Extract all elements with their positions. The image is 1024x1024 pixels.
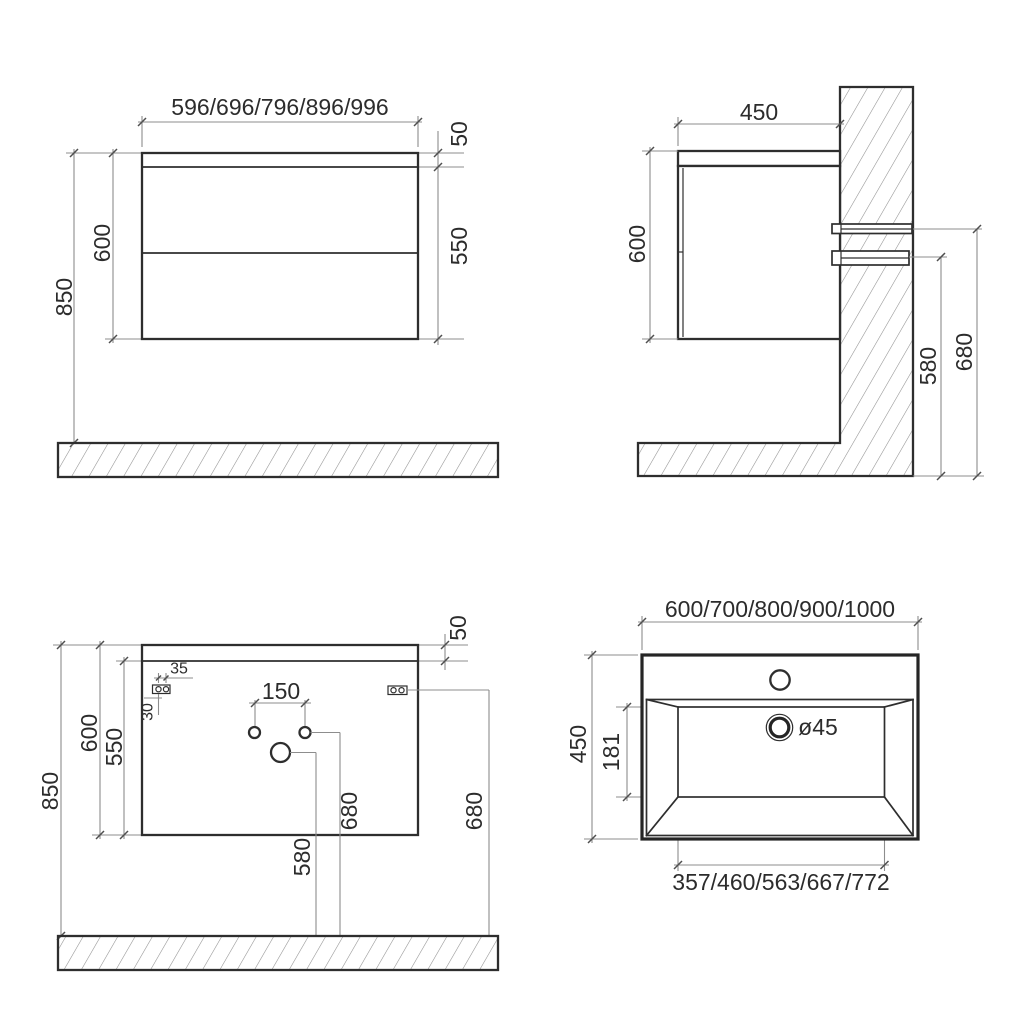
- side-depth-label: 450: [740, 99, 778, 125]
- back-bracket-height-label: 680: [461, 792, 487, 830]
- sink-basin-depth-label: 181: [598, 733, 624, 771]
- faucet-hole: [770, 670, 789, 689]
- drain-hole: [271, 743, 290, 762]
- front-cabinet-height-label: 600: [89, 224, 115, 262]
- sink-top-view: 600/700/800/900/1000 450 181 ø45 357/460…: [565, 596, 922, 895]
- back-faucet-spacing-label: 150: [262, 678, 300, 704]
- back-install-height-label: 850: [37, 772, 63, 810]
- side-cabinet-height-label: 600: [624, 225, 650, 263]
- back-cabinet-height-label: 600: [76, 714, 102, 752]
- front-install-height-label: 850: [51, 278, 77, 316]
- bracket-hole: [163, 687, 168, 692]
- bracket-hole: [156, 687, 161, 692]
- back-floor: [58, 936, 498, 970]
- back-supply-height-label: 680: [336, 792, 362, 830]
- sink-depth-label: 450: [565, 725, 591, 763]
- supply-hole-left: [249, 727, 260, 738]
- bracket-hole: [399, 688, 404, 693]
- sink-basin-width-label: 357/460/563/667/772: [672, 869, 889, 895]
- side-lower-bracket-label: 580: [915, 347, 941, 385]
- front-door-height-label: 550: [446, 227, 472, 265]
- vanity-dimension-drawing: 596/696/796/896/996 50 550 600 850: [0, 0, 1024, 1024]
- side-cabinet-body: [678, 166, 840, 339]
- front-view: 596/696/796/896/996 50 550 600 850: [51, 94, 498, 477]
- back-top-panel-label: 50: [445, 615, 471, 641]
- front-width-label: 596/696/796/896/996: [171, 94, 388, 120]
- bracket-hole: [391, 688, 396, 693]
- front-top-panel-label: 50: [446, 121, 472, 147]
- side-view: 450 600 580 680: [624, 87, 984, 480]
- back-left-bracket: [153, 685, 171, 694]
- side-upper-bracket-label: 680: [951, 333, 977, 371]
- back-door-height-label: 550: [101, 728, 127, 766]
- sink-width-label: 600/700/800/900/1000: [665, 596, 895, 622]
- back-bracket-hole-spacing-label: 35: [170, 661, 188, 678]
- supply-hole-right: [300, 727, 311, 738]
- side-upper-bracket: [832, 224, 912, 234]
- back-drain-height-label: 580: [289, 838, 315, 876]
- back-right-bracket: [388, 686, 407, 695]
- side-lower-bracket: [832, 251, 909, 265]
- back-view: 50 35 30 150 600 550 850 680 580 680: [37, 615, 498, 970]
- side-countertop: [678, 151, 840, 166]
- front-cabinet-outline: [142, 153, 418, 339]
- sink-drain-diameter-label: ø45: [798, 714, 838, 740]
- back-bracket-offset-label: 30: [140, 703, 157, 721]
- front-floor: [58, 443, 498, 477]
